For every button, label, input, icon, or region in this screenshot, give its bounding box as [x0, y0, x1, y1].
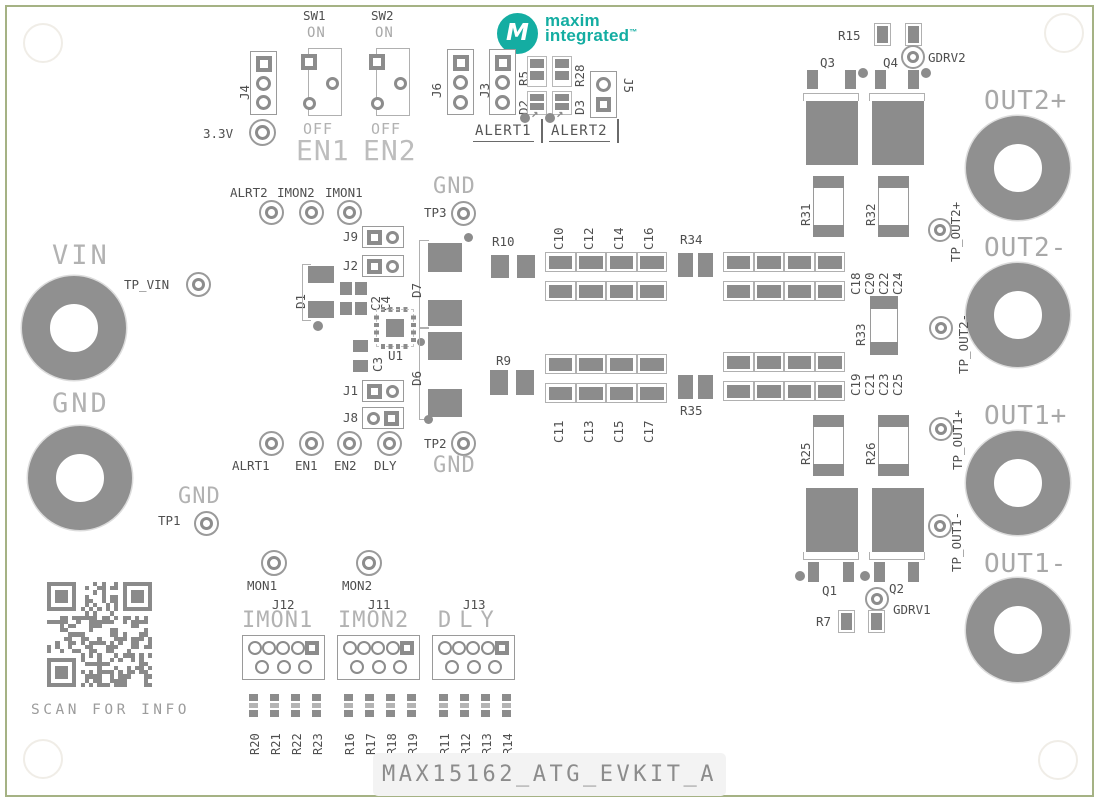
resistor-r11	[439, 694, 448, 719]
header-j11	[337, 635, 420, 680]
ref-r23: R23	[311, 721, 325, 755]
ref-r21: R21	[269, 721, 283, 755]
net-vin-large: VIN	[52, 240, 110, 271]
pin-round	[256, 76, 271, 91]
testpoint-mon2	[356, 550, 382, 576]
pin-round	[386, 385, 399, 398]
testpoint-out1-plus	[929, 417, 953, 441]
turret-out2-minus	[966, 263, 1070, 367]
net-en1-large: EN1	[296, 134, 350, 167]
resistor-r19	[407, 694, 416, 719]
sw2-pad-round	[371, 97, 384, 110]
testpoint-tp3	[451, 201, 476, 226]
ref-d6: D6	[409, 356, 424, 386]
resistor-r25	[813, 415, 844, 476]
testpoint-alrt1	[259, 431, 284, 456]
net-tp-out2-plus: TP_OUT2+	[948, 170, 963, 262]
pin-round	[256, 95, 271, 110]
pin-square	[256, 56, 272, 72]
ref-tp2: TP2	[424, 436, 447, 451]
net-out2-minus: OUT2-	[984, 233, 1067, 263]
q4-tab-pad	[872, 101, 924, 165]
ref-r31: R31	[798, 186, 813, 226]
ref-r22: R22	[290, 721, 304, 755]
sw1-pad-round	[326, 77, 339, 90]
cap-bank-top-left-row2	[545, 281, 667, 301]
ref-r9: R9	[496, 353, 511, 368]
ref-r19: R19	[406, 721, 420, 755]
net-tp-out1-plus: TP_OUT1+	[950, 374, 965, 470]
resistor-r9	[490, 370, 534, 395]
cap-bank-bottom-right-row1	[723, 352, 845, 372]
ref-j5: J5	[621, 78, 636, 106]
mounting-hole-top-right	[1044, 13, 1084, 53]
ic-u1	[374, 307, 416, 349]
ref-c14: C14	[611, 214, 626, 250]
testpoint-dly	[377, 431, 402, 456]
mounting-hole-top-left	[23, 23, 63, 63]
d1-pad	[308, 301, 334, 318]
turret-vin	[22, 276, 126, 380]
q3-tab-pad	[806, 101, 858, 165]
led-d2-indicator	[520, 113, 530, 123]
d7-pad	[428, 243, 462, 272]
ref-r16: R16	[343, 721, 357, 755]
testpoint-gdrv1	[865, 587, 889, 611]
pin-square	[384, 411, 399, 426]
testpoint-en1	[299, 431, 324, 456]
q4-pad	[908, 70, 919, 89]
q3-pad	[807, 70, 818, 89]
ref-sw2: SW2	[371, 8, 394, 23]
led-d3-arrow-icon: ↗	[556, 106, 563, 120]
cap-bank-top-left-row1	[545, 252, 667, 272]
ref-r12: R12	[459, 721, 473, 755]
ref-r13: R13	[480, 721, 494, 755]
ref-r34: R34	[680, 232, 703, 247]
ref-r11: R11	[438, 721, 452, 755]
ref-r26: R26	[863, 425, 878, 465]
q2-tab-pad	[872, 488, 924, 552]
d6-pad	[428, 389, 462, 417]
pin-square	[367, 384, 382, 399]
net-3v3: 3.3V	[203, 126, 233, 141]
j13-net-dly: DLY	[438, 608, 502, 633]
ref-c20: C20	[862, 255, 877, 295]
net-dly: DLY	[374, 458, 397, 473]
resistor-r32	[878, 176, 909, 237]
ref-r18: R18	[385, 721, 399, 755]
ref-tp1: TP1	[158, 513, 181, 528]
pin-round	[367, 412, 380, 425]
testpoint-vin	[186, 272, 211, 297]
ref-c25: C25	[890, 356, 905, 396]
maxim-monogram: M	[506, 22, 529, 45]
jumper-j2	[362, 255, 404, 277]
tp2-net-gnd: GND	[433, 453, 476, 478]
net-out2-plus: OUT2+	[984, 86, 1067, 116]
c4-pad	[355, 282, 367, 295]
tp3-net-gnd: GND	[433, 174, 476, 199]
header-j5	[590, 71, 617, 118]
testpoint-3v3	[249, 119, 276, 146]
resistor-r10	[491, 255, 535, 278]
alert1-bracket	[541, 119, 543, 143]
ref-c24: C24	[890, 255, 905, 295]
net-out1-plus: OUT1+	[984, 401, 1067, 431]
ref-j8: J8	[343, 410, 358, 425]
ref-d3: D3	[572, 89, 587, 115]
r7-pad	[838, 610, 855, 633]
resistor-r35	[678, 375, 713, 399]
resistor-r26	[878, 415, 909, 476]
resistor-r31	[813, 176, 844, 237]
resistor-r20	[249, 694, 258, 719]
testpoint-gdrv2	[901, 45, 925, 69]
q3-pin1-dot	[858, 68, 868, 78]
alert2-bracket	[617, 119, 619, 143]
ref-tp-vin: TP_VIN	[124, 277, 169, 292]
j12-net-imon1: IMON1	[242, 608, 313, 633]
sw1-pad-round	[303, 97, 316, 110]
testpoint-mon1	[261, 550, 287, 576]
j11-net-imon2: IMON2	[338, 608, 409, 633]
maxim-logo-icon: M	[497, 13, 538, 54]
d6-pad	[428, 332, 462, 360]
ref-c17: C17	[641, 407, 656, 443]
sw2-pad-round	[394, 77, 407, 90]
qr-caption: SCAN FOR INFO	[31, 702, 190, 718]
via-dot	[464, 233, 473, 242]
header-j6	[447, 49, 474, 115]
sw2-on-label: ON	[375, 25, 394, 41]
q2-outline	[869, 552, 925, 560]
cap-bank-bottom-left-row1	[545, 354, 667, 374]
via-dot	[313, 321, 323, 331]
turret-out1-plus	[966, 431, 1070, 535]
turret-out2-plus	[966, 116, 1070, 220]
r15-pad	[874, 23, 891, 46]
net-en2-large: EN2	[363, 134, 417, 167]
net-en1: EN1	[295, 458, 318, 473]
trademark-symbol: ™	[629, 27, 637, 36]
net-imon1: IMON1	[325, 185, 363, 200]
pin-square	[367, 230, 382, 245]
sw1-on-label: ON	[307, 25, 326, 41]
ref-q2: Q2	[889, 581, 904, 596]
q4-pin1-dot	[921, 68, 931, 78]
c2-pad	[340, 302, 352, 315]
jumper-j8	[362, 407, 404, 429]
sw1-pad-square	[301, 54, 317, 70]
q1-pad	[808, 562, 819, 582]
ref-r20: R20	[248, 721, 262, 755]
ref-r14: R14	[501, 721, 515, 755]
ref-q3: Q3	[820, 55, 835, 70]
q1-pin1-dot	[795, 571, 805, 581]
header-j12	[242, 635, 325, 680]
net-alrt1: ALRT1	[232, 458, 270, 473]
board-title: MAX15162_ATG_EVKIT_A	[373, 753, 726, 796]
cap-bank-top-right-row2	[723, 281, 845, 301]
pcb-evkit-diagram: M maxim integrated™ J4 3.3V SW1 ON OFF E…	[0, 0, 1100, 803]
resistor-r5	[527, 56, 547, 87]
ref-c12: C12	[581, 214, 596, 250]
testpoint-imon1	[337, 200, 362, 225]
pin-square	[453, 55, 469, 71]
q1-tab-pad	[806, 488, 858, 552]
testpoint-alrt2	[259, 200, 284, 225]
c4-pad	[355, 302, 367, 315]
ref-c18: C18	[848, 255, 863, 295]
c3-pad	[353, 360, 368, 372]
jumper-j1	[362, 380, 404, 402]
led-d2-arrow-icon: ↗	[531, 106, 538, 120]
r7-pad	[868, 610, 885, 633]
r15-pad	[905, 23, 922, 46]
ref-c16: C16	[641, 214, 656, 250]
ref-q1: Q1	[822, 583, 837, 598]
resistor-r18	[386, 694, 395, 719]
ref-j2: J2	[343, 258, 358, 273]
ref-r32: R32	[863, 186, 878, 226]
header-j13	[432, 635, 515, 680]
q4-outline	[869, 93, 925, 101]
resistor-r21	[270, 694, 279, 719]
ref-d7: D7	[409, 268, 424, 298]
resistor-r22	[291, 694, 300, 719]
mounting-hole-bottom-right	[1038, 740, 1078, 780]
net-gnd-large: GND	[52, 388, 110, 419]
pin-round	[386, 260, 399, 273]
turret-out1-minus	[966, 578, 1070, 682]
testpoint-out1-minus	[928, 514, 952, 538]
q2-pin1-dot	[860, 571, 870, 581]
ref-r10: R10	[492, 234, 515, 249]
qr-code	[47, 582, 152, 687]
turret-gnd	[28, 426, 132, 530]
net-alert2: ALERT2	[549, 123, 610, 142]
resistor-r17	[365, 694, 374, 719]
maxim-logo-line2: integrated™	[545, 28, 637, 44]
c3-pad	[353, 340, 368, 352]
ref-j1: J1	[343, 383, 358, 398]
net-gdrv1: GDRV1	[893, 602, 931, 617]
pin-round	[495, 95, 510, 110]
resistor-r34	[678, 253, 713, 277]
net-alert1: ALERT1	[473, 123, 534, 142]
ref-q4: Q4	[883, 55, 898, 70]
cap-bank-bottom-right-row2	[723, 381, 845, 401]
net-mon2: MON2	[342, 578, 372, 593]
resistor-r28	[552, 56, 572, 87]
q4-pad	[875, 70, 886, 89]
via-dot	[424, 415, 433, 424]
ref-c19: C19	[848, 356, 863, 396]
pin-square	[596, 97, 611, 112]
ref-c23: C23	[876, 356, 891, 396]
ref-c10: C10	[551, 214, 566, 250]
header-j3	[489, 49, 516, 115]
ref-r15: R15	[838, 28, 861, 43]
ref-c3: C3	[370, 344, 385, 372]
pin-round	[453, 95, 468, 110]
ref-r17: R17	[364, 721, 378, 755]
ref-c11: C11	[551, 407, 566, 443]
net-tp-out2-minus: TP_OUT2-	[956, 278, 971, 374]
pin-square	[367, 259, 382, 274]
header-j4	[250, 51, 277, 115]
resistor-r23	[312, 694, 321, 719]
resistor-r13	[481, 694, 490, 719]
testpoint-out2-plus	[928, 218, 952, 242]
net-alrt2: ALRT2	[230, 185, 268, 200]
ref-c22: C22	[876, 255, 891, 295]
pin-square	[495, 55, 511, 71]
ref-sw1: SW1	[303, 8, 326, 23]
d7-pad	[428, 300, 462, 326]
ref-c15: C15	[611, 407, 626, 443]
q2-pad	[874, 562, 885, 582]
resistor-r33	[870, 296, 898, 355]
tp1-net-gnd: GND	[178, 484, 221, 509]
pin-round	[596, 77, 611, 92]
pin-round	[495, 75, 510, 90]
pin-round	[453, 75, 468, 90]
q3-pad	[845, 70, 856, 89]
c2-pad	[340, 282, 352, 295]
net-gdrv2: GDRV2	[928, 50, 966, 65]
net-en2: EN2	[334, 458, 357, 473]
net-mon1: MON1	[247, 578, 277, 593]
testpoint-imon2	[299, 200, 324, 225]
ref-r25: R25	[798, 425, 813, 465]
jumper-j9	[362, 226, 404, 248]
ref-r33: R33	[853, 308, 868, 346]
ref-u1: U1	[388, 348, 403, 363]
ref-j6: J6	[429, 68, 444, 98]
ref-tp3: TP3	[424, 205, 447, 220]
testpoint-en2	[337, 431, 362, 456]
pin-round	[386, 231, 399, 244]
ref-r35: R35	[680, 403, 703, 418]
testpoint-out2-minus	[929, 316, 953, 340]
cap-bank-bottom-left-row2	[545, 383, 667, 403]
sw2-pad-square	[369, 54, 385, 70]
ref-c21: C21	[862, 356, 877, 396]
ref-r28: R28	[572, 55, 587, 87]
mounting-hole-bottom-left	[23, 739, 63, 779]
resistor-r14	[502, 694, 511, 719]
ref-c13: C13	[581, 407, 596, 443]
q1-outline	[803, 552, 859, 560]
q1-pad	[843, 562, 854, 582]
net-imon2: IMON2	[277, 185, 315, 200]
q2-pad	[908, 562, 919, 582]
resistor-r16	[344, 694, 353, 719]
ref-r7: R7	[816, 614, 831, 629]
cap-bank-top-right-row1	[723, 252, 845, 272]
d1-pad	[308, 266, 334, 283]
ref-j9: J9	[343, 229, 358, 244]
led-d3-indicator	[545, 113, 555, 123]
q3-outline	[803, 93, 859, 101]
resistor-r12	[460, 694, 469, 719]
testpoint-tp1	[194, 511, 219, 536]
net-out1-minus: OUT1-	[984, 549, 1067, 579]
